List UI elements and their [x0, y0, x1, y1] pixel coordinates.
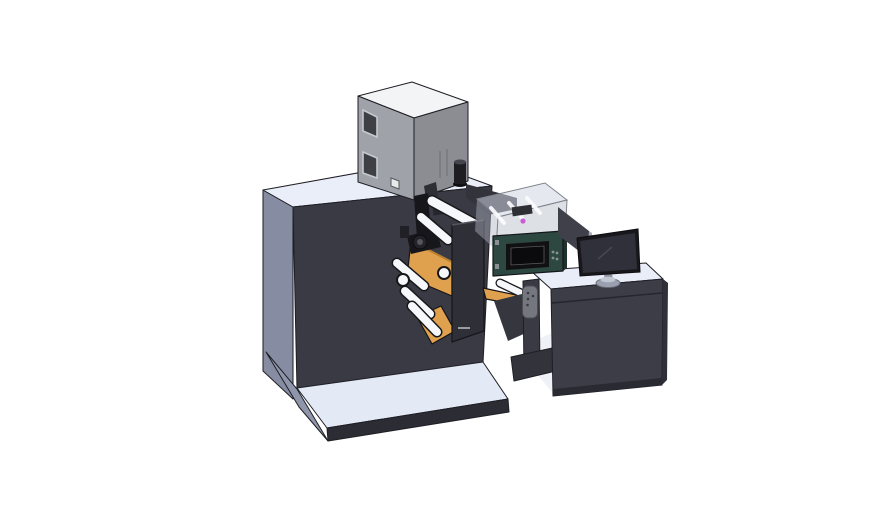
control-unit — [493, 231, 567, 276]
roller-end-cap — [438, 267, 450, 279]
remote-button — [532, 295, 535, 298]
desk-front-face — [551, 279, 663, 396]
desk-right-face — [662, 279, 668, 385]
remote-button — [526, 304, 529, 307]
control-button — [552, 251, 555, 254]
control-button — [556, 252, 559, 255]
remote-button — [527, 292, 530, 295]
mount-plate-label — [458, 327, 470, 329]
monitor-stand-base-top — [601, 277, 616, 283]
cylinder-top — [454, 160, 466, 165]
control-screen — [511, 246, 544, 265]
operator-desk — [511, 263, 668, 396]
control-latch — [495, 240, 499, 245]
printhead-bracket — [400, 226, 409, 238]
mount-plate-face — [452, 220, 484, 342]
exhaust-cylinder — [453, 160, 467, 188]
mount-plate — [452, 220, 484, 342]
control-latch — [495, 264, 499, 269]
control-button — [552, 257, 555, 260]
feeder-cabinet — [358, 82, 468, 200]
machine-render — [0, 0, 888, 522]
printhead-gear-hub — [417, 239, 423, 245]
remote-button — [527, 298, 530, 301]
pendant-remote — [523, 286, 538, 318]
cad-render-canvas — [0, 0, 888, 522]
roller-end-cap — [397, 274, 409, 286]
control-button — [556, 258, 559, 261]
enclosure-accent — [520, 218, 525, 223]
